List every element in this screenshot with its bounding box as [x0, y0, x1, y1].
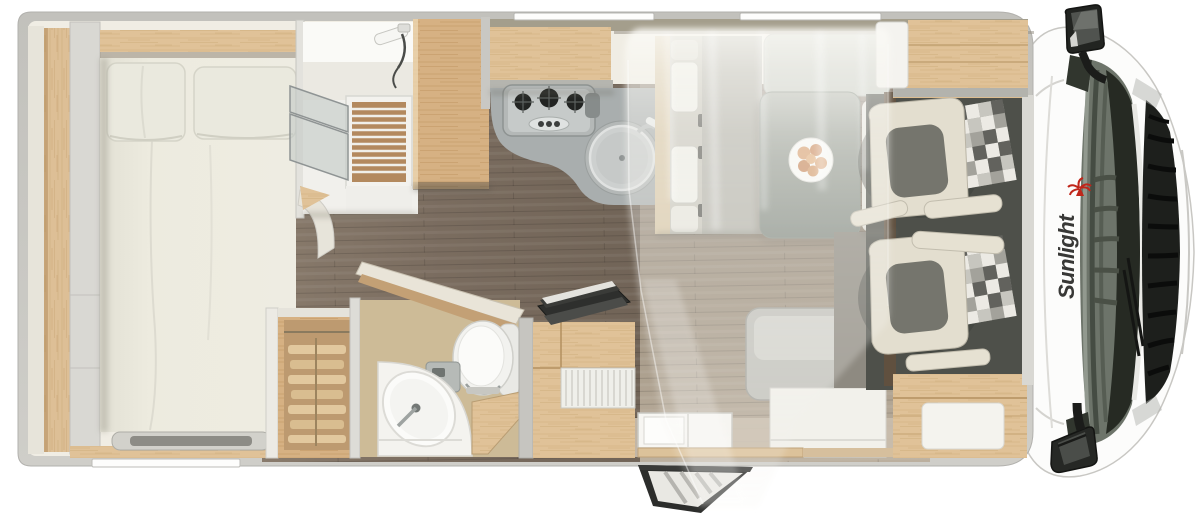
- svg-text:Sunlight: Sunlight: [1054, 213, 1079, 299]
